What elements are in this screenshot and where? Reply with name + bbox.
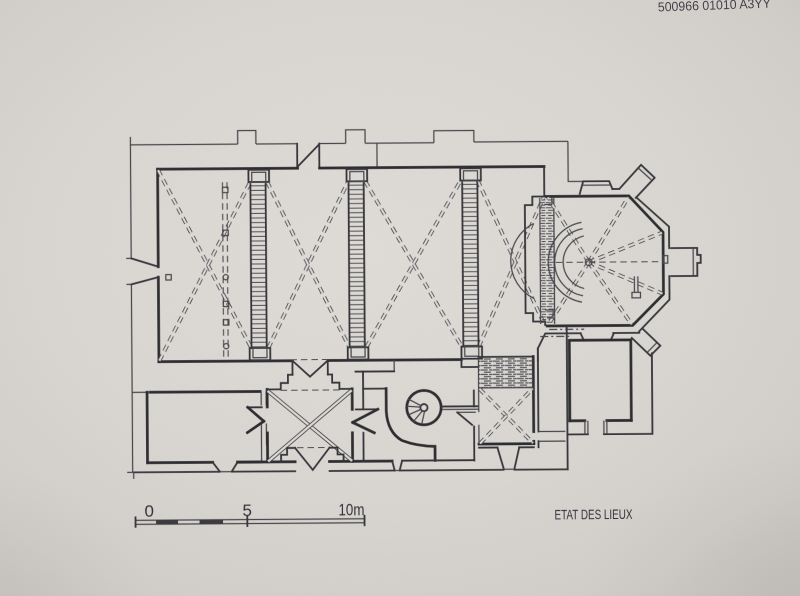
svg-text:ETAT DES LIEUX: ETAT DES LIEUX xyxy=(554,506,633,523)
svg-text:0: 0 xyxy=(144,502,154,521)
svg-text:10m: 10m xyxy=(338,500,364,519)
svg-text:5: 5 xyxy=(242,501,252,520)
